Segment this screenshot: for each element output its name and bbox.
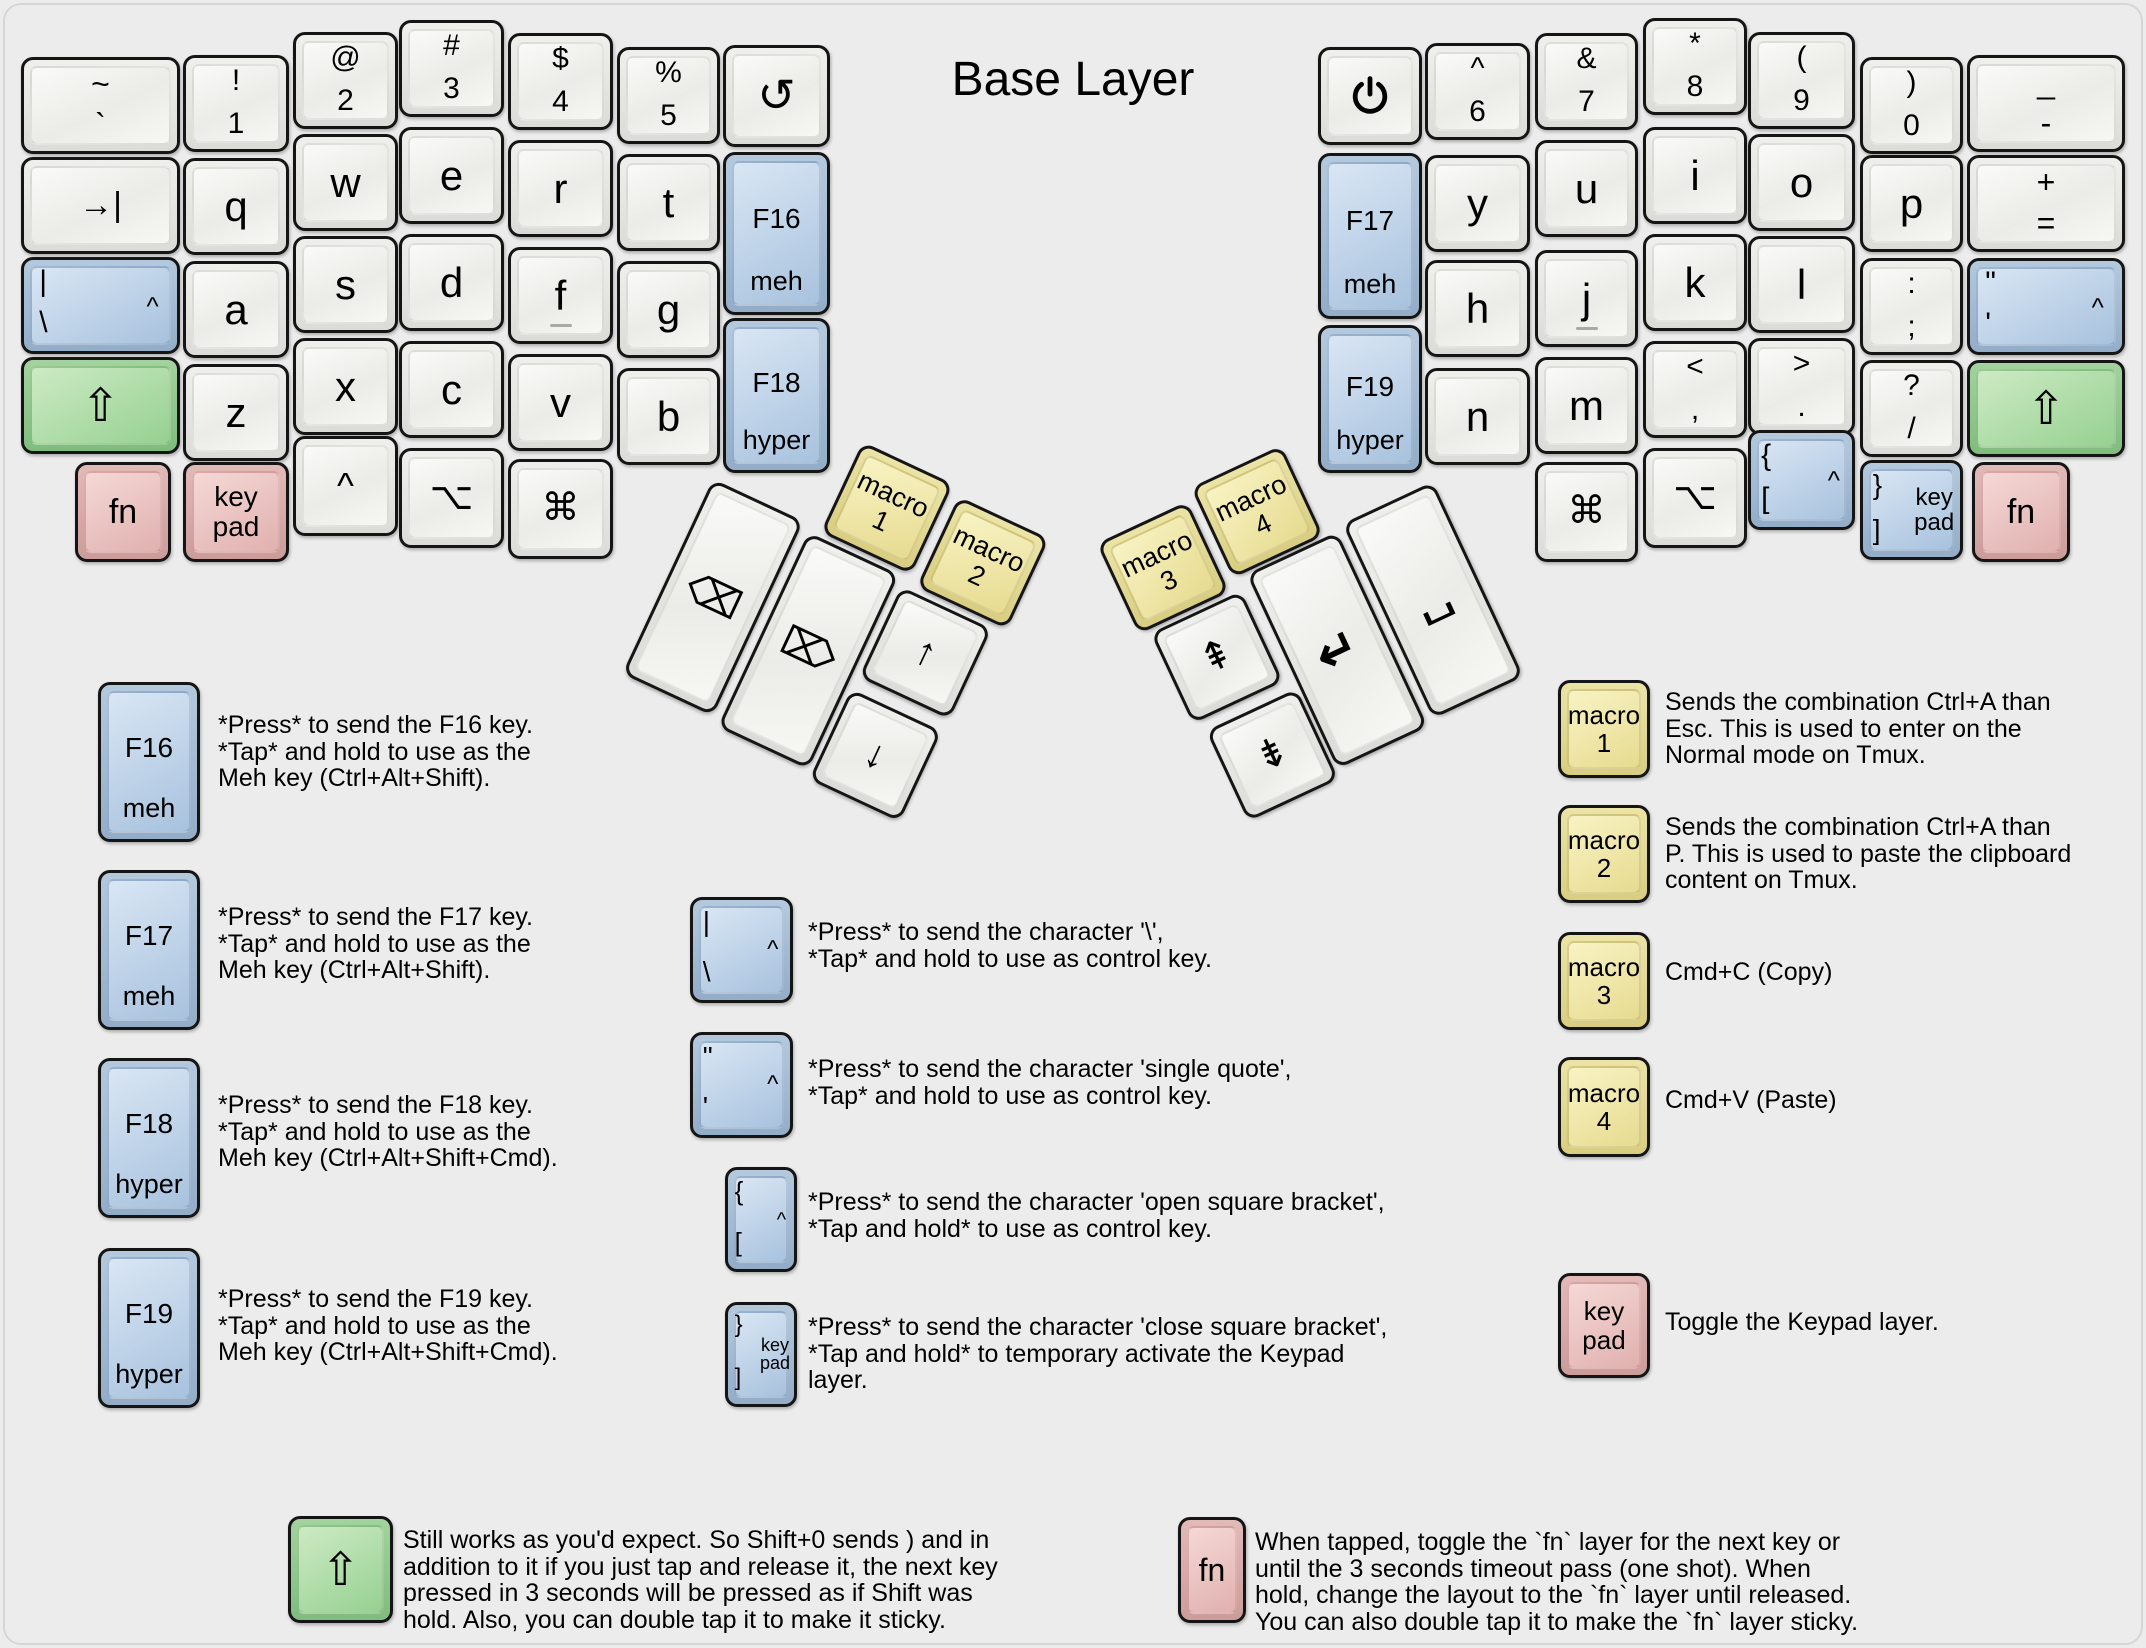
- key-bracket-close-keypad-label: }: [1873, 471, 1882, 499]
- legend-key-macro2: macro 2: [1558, 805, 1650, 903]
- key-quote-ctrl-label: ": [1985, 268, 1996, 298]
- legend-key-fn: fn: [1178, 1517, 1246, 1623]
- key-quote-ctrl-label: ^: [2092, 294, 2104, 320]
- key-f17-label: F17: [1321, 207, 1419, 235]
- key-n: n: [1425, 368, 1530, 465]
- key-3-label: 3: [402, 74, 501, 104]
- key-x-label: x: [296, 341, 395, 432]
- legend-key-backslash-label: |: [703, 908, 710, 936]
- key-s: s: [293, 236, 398, 333]
- key-m-label: m: [1538, 360, 1635, 451]
- key-comma: <,: [1643, 341, 1747, 438]
- key-equals: +=: [1967, 155, 2125, 252]
- key-equals-label: +: [1970, 166, 2122, 198]
- key-tilde-label: `: [24, 109, 177, 141]
- key-y-label: y: [1428, 158, 1527, 249]
- key-quote-ctrl: "'^: [1967, 258, 2125, 355]
- key-v: v: [508, 354, 613, 451]
- legend-key-bracket-open-label: {: [735, 1178, 744, 1204]
- key-6-label: ^: [1428, 54, 1527, 84]
- legend-bracket-open-text: *Press* to send the character 'open squa…: [808, 1189, 1385, 1242]
- legend-key-quote: "'^: [690, 1032, 793, 1138]
- legend-macro4-text: Cmd+V (Paste): [1665, 1087, 1837, 1114]
- legend-key-f19-label: F19: [101, 1300, 197, 1328]
- key-5-label: 5: [620, 101, 717, 131]
- key-d-label: d: [402, 237, 501, 328]
- key-m: m: [1535, 357, 1638, 454]
- key-option-left: ⌥: [399, 448, 504, 548]
- legend-keypad-text: Toggle the Keypad layer.: [1665, 1309, 1939, 1336]
- key-9-label: 9: [1751, 86, 1852, 116]
- key-shift-right: ⇧: [1967, 360, 2125, 457]
- key-n-label: n: [1428, 371, 1527, 462]
- key-2-label: @: [296, 43, 395, 73]
- legend-key-keypad: key pad: [1558, 1273, 1650, 1378]
- key-f19: F19hyper: [1318, 325, 1422, 473]
- legend-key-backslash: |\^: [690, 897, 793, 1003]
- key-power: [1318, 47, 1422, 145]
- key-h: h: [1425, 260, 1530, 357]
- key-f18: F18hyper: [723, 318, 830, 473]
- key-fn-right: fn: [1972, 462, 2070, 562]
- legend-key-f16-label: F16: [101, 734, 197, 762]
- legend-f18-text: *Press* to send the F18 key. *Tap* and h…: [218, 1092, 558, 1172]
- key-fn-right-label: fn: [1975, 465, 2067, 559]
- key-o: o: [1748, 134, 1855, 231]
- key-period: >.: [1748, 338, 1855, 435]
- legend-key-f17-label: F17: [101, 922, 197, 950]
- key-undo: ↺: [723, 45, 830, 147]
- key-1-label: 1: [186, 109, 286, 139]
- legend-key-macro1: macro 1: [1558, 680, 1650, 778]
- legend-macro2-text: Sends the combination Ctrl+A than P. Thi…: [1665, 814, 2071, 894]
- key-keypad-left-label: key pad: [186, 465, 286, 559]
- legend-key-f17-label: meh: [101, 983, 197, 1010]
- key-semicolon: :;: [1860, 258, 1963, 355]
- key-a: a: [183, 261, 289, 358]
- key-bracket-open-ctrl-label: {: [1761, 441, 1771, 471]
- key-tab: →|: [21, 157, 180, 254]
- legend-macro1-text: Sends the combination Ctrl+A than Esc. T…: [1665, 689, 2051, 769]
- key-cmd-right: ⌘: [1535, 462, 1638, 562]
- key-comma-label: <: [1646, 352, 1744, 382]
- key-y: y: [1425, 155, 1530, 252]
- key-l-label: l: [1751, 239, 1852, 330]
- key-q: q: [183, 158, 289, 255]
- legend-key-bracket-open-label: ^: [777, 1210, 786, 1230]
- key-bracket-open-ctrl-label: [: [1761, 484, 1769, 514]
- key-e: e: [399, 127, 504, 224]
- key-8: *8: [1643, 18, 1747, 115]
- key-c: c: [399, 341, 504, 438]
- key-shift-left-label: ⇧: [24, 360, 177, 451]
- key-backslash-ctrl-label: \: [39, 308, 47, 338]
- key-minus-label: _: [1970, 66, 2122, 98]
- key-f18-label: F18: [726, 369, 827, 397]
- key-j: j: [1535, 250, 1638, 347]
- key-z: z: [183, 364, 289, 461]
- key-slash: ?/: [1860, 360, 1963, 457]
- key-r: r: [508, 140, 613, 237]
- key-r-label: r: [511, 143, 610, 234]
- key-f16: F16meh: [723, 152, 830, 315]
- legend-key-quote-label: ": [703, 1043, 713, 1071]
- key-7: &7: [1535, 33, 1638, 130]
- key-option-left-label: ⌥: [402, 451, 501, 545]
- key-o-label: o: [1751, 137, 1852, 228]
- key-bracket-open-ctrl: {[^: [1748, 430, 1855, 530]
- key-bracket-close-keypad-label: key pad: [1914, 485, 1954, 535]
- legend-f16-text: *Press* to send the F16 key. *Tap* and h…: [218, 712, 533, 792]
- key-k: k: [1643, 234, 1747, 331]
- key-f-homing-bar: [550, 324, 572, 327]
- key-f16-label: F16: [726, 205, 827, 233]
- legend-shift-text: Still works as you'd expect. So Shift+0 …: [403, 1527, 998, 1633]
- key-f: f: [508, 247, 613, 344]
- key-w-label: w: [296, 137, 395, 228]
- key-tilde-label: ~: [24, 68, 177, 100]
- key-8-label: *: [1646, 29, 1744, 59]
- key-5: %5: [617, 47, 720, 144]
- legend-key-f16-label: meh: [101, 795, 197, 822]
- legend-key-macro4: macro 4: [1558, 1057, 1650, 1157]
- key-b-label: b: [620, 371, 717, 462]
- legend-key-f17: F17meh: [98, 870, 200, 1030]
- legend-key-bracket-open-label: [: [735, 1229, 742, 1255]
- key-1-label: !: [186, 66, 286, 96]
- legend-key-bracket-close-label: ]: [735, 1366, 742, 1390]
- key-l: l: [1748, 236, 1855, 333]
- key-i: i: [1643, 127, 1747, 224]
- key-6: ^6: [1425, 43, 1530, 140]
- key-e-label: e: [402, 130, 501, 221]
- key-semicolon-label: :: [1863, 269, 1960, 299]
- legend-key-macro3-label: macro 3: [1561, 935, 1647, 1027]
- key-cmd-left-label: ⌘: [511, 462, 610, 556]
- key-1: !1: [183, 55, 289, 152]
- legend-key-quote-label: ': [703, 1093, 708, 1121]
- key-3: #3: [399, 20, 504, 117]
- key-f18-label: hyper: [726, 427, 827, 454]
- key-g: g: [617, 261, 720, 358]
- key-c-label: c: [402, 344, 501, 435]
- key-2: @2: [293, 32, 398, 129]
- legend-key-f18-label: hyper: [101, 1171, 197, 1198]
- legend-key-f18-label: F18: [101, 1110, 197, 1138]
- legend-key-bracket-close: }]key pad: [725, 1302, 797, 1407]
- key-ctrl-left-label: ^: [296, 439, 395, 533]
- key-keypad-left: key pad: [183, 462, 289, 562]
- key-slash-label: /: [1863, 414, 1960, 444]
- key-cmd-left: ⌘: [508, 459, 613, 559]
- key-p-label: p: [1863, 158, 1960, 249]
- legend-bracket-close-text: *Press* to send the character 'close squ…: [808, 1314, 1387, 1394]
- key-4-label: 4: [511, 87, 610, 117]
- key-8-label: 8: [1646, 72, 1744, 102]
- legend-key-f16: F16meh: [98, 682, 200, 842]
- legend-key-shift-label: ⇧: [291, 1519, 390, 1620]
- legend-key-backslash-label: ^: [767, 938, 778, 962]
- key-4: $4: [508, 33, 613, 130]
- key-6-label: 6: [1428, 97, 1527, 127]
- key-9: (9: [1748, 32, 1855, 129]
- key-bracket-close-keypad-label: ]: [1873, 516, 1881, 544]
- key-equals-label: =: [1970, 207, 2122, 239]
- key-b: b: [617, 368, 720, 465]
- key-t-label: t: [620, 157, 717, 248]
- key-bracket-close-keypad: }]key pad: [1860, 460, 1963, 560]
- key-7-label: 7: [1538, 87, 1635, 117]
- key-option-right: ⌥: [1643, 448, 1747, 548]
- key-f16-label: meh: [726, 268, 827, 295]
- power-icon: [1321, 50, 1419, 142]
- key-u-label: u: [1538, 143, 1635, 234]
- key-q-label: q: [186, 161, 286, 252]
- key-semicolon-label: ;: [1863, 312, 1960, 342]
- key-g-label: g: [620, 264, 717, 355]
- legend-key-f19: F19hyper: [98, 1248, 200, 1408]
- key-period-label: >: [1751, 349, 1852, 379]
- base-layer-diagram: { "title": "Base Layer", "palette": { "b…: [0, 0, 2146, 1648]
- key-a-label: a: [186, 264, 286, 355]
- legend-key-f19-label: hyper: [101, 1361, 197, 1388]
- key-2-label: 2: [296, 86, 395, 116]
- legend-f17-text: *Press* to send the F17 key. *Tap* and h…: [218, 904, 533, 984]
- key-shift-left: ⇧: [21, 357, 180, 454]
- key-f19-label: hyper: [1321, 427, 1419, 454]
- legend-key-fn-label: fn: [1181, 1520, 1243, 1620]
- legend-key-macro2-label: macro 2: [1561, 808, 1647, 900]
- key-period-label: .: [1751, 392, 1852, 422]
- key-tilde: ~`: [21, 57, 180, 154]
- key-7-label: &: [1538, 44, 1635, 74]
- key-fn-left: fn: [75, 462, 171, 562]
- key-z-label: z: [186, 367, 286, 458]
- key-k-label: k: [1646, 237, 1744, 328]
- key-i-label: i: [1646, 130, 1744, 221]
- key-4-label: $: [511, 44, 610, 74]
- legend-backslash-text: *Press* to send the character '\', *Tap*…: [808, 919, 1212, 972]
- legend-key-quote-label: ^: [767, 1073, 778, 1097]
- key-0: )0: [1860, 57, 1963, 154]
- legend-f19-text: *Press* to send the F19 key. *Tap* and h…: [218, 1286, 558, 1366]
- key-t: t: [617, 154, 720, 251]
- key-d: d: [399, 234, 504, 331]
- legend-macro3-text: Cmd+C (Copy): [1665, 959, 1832, 986]
- key-0-label: 0: [1863, 111, 1960, 141]
- key-comma-label: ,: [1646, 395, 1744, 425]
- key-v-label: v: [511, 357, 610, 448]
- key-slash-label: ?: [1863, 371, 1960, 401]
- key-u: u: [1535, 140, 1638, 237]
- key-undo-label: ↺: [726, 48, 827, 144]
- key-0-label: ): [1863, 68, 1960, 98]
- legend-key-bracket-close-label: }: [735, 1313, 743, 1337]
- key-j-homing-bar: [1576, 327, 1598, 330]
- legend-fn-text: When tapped, toggle the `fn` layer for t…: [1255, 1529, 1858, 1635]
- key-h-label: h: [1428, 263, 1527, 354]
- legend-key-f18: F18hyper: [98, 1058, 200, 1218]
- key-cmd-right-label: ⌘: [1538, 465, 1635, 559]
- legend-key-keypad-label: key pad: [1561, 1276, 1647, 1375]
- legend-key-bracket-close-label: key pad: [760, 1336, 790, 1374]
- key-backslash-ctrl: |\^: [21, 257, 180, 354]
- key-fn-left-label: fn: [78, 465, 168, 559]
- key-option-right-label: ⌥: [1646, 451, 1744, 545]
- legend-key-macro3: macro 3: [1558, 932, 1650, 1030]
- key-9-label: (: [1751, 43, 1852, 73]
- key-backslash-ctrl-label: ^: [146, 293, 158, 319]
- legend-key-macro4-label: macro 4: [1561, 1060, 1647, 1154]
- key-p: p: [1860, 155, 1963, 252]
- legend-key-shift: ⇧: [288, 1516, 393, 1623]
- key-f19-label: F19: [1321, 373, 1419, 401]
- key-ctrl-left: ^: [293, 436, 398, 536]
- key-f17: F17meh: [1318, 153, 1422, 319]
- legend-quote-text: *Press* to send the character 'single qu…: [808, 1056, 1291, 1109]
- legend-key-bracket-open: {[^: [725, 1167, 797, 1272]
- legend-key-backslash-label: \: [703, 958, 711, 986]
- key-bracket-open-ctrl-label: ^: [1828, 467, 1840, 493]
- legend-key-macro1-label: macro 1: [1561, 683, 1647, 775]
- key-minus: _-: [1967, 55, 2125, 152]
- key-f17-label: meh: [1321, 271, 1419, 298]
- key-shift-right-label: ⇧: [1970, 363, 2122, 454]
- key-s-label: s: [296, 239, 395, 330]
- key-w: w: [293, 134, 398, 231]
- key-5-label: %: [620, 58, 717, 88]
- key-backslash-ctrl-label: |: [39, 267, 47, 297]
- key-minus-label: -: [1970, 107, 2122, 139]
- key-3-label: #: [402, 31, 501, 61]
- key-quote-ctrl-label: ': [1985, 309, 1991, 339]
- key-tab-label: →|: [24, 160, 177, 251]
- key-x: x: [293, 338, 398, 435]
